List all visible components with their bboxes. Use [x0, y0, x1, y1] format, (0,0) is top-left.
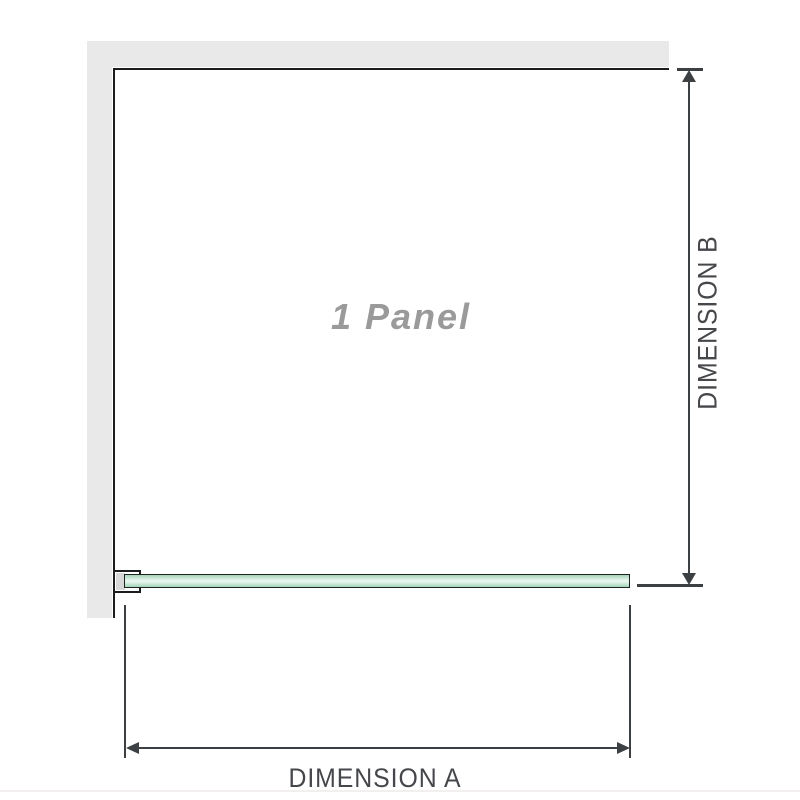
dimension-a-label: DIMENSION A — [189, 764, 561, 792]
dimension-b-arrow-up-icon — [682, 70, 696, 82]
panel-count-label: 1 Panel — [141, 296, 661, 336]
wall-left — [87, 41, 112, 618]
dimension-b-arrow-down-icon — [682, 573, 696, 585]
glass-panel-bar — [124, 574, 630, 588]
dimension-a-arrow-right-icon — [617, 742, 630, 754]
panel-left-edge — [113, 68, 115, 618]
shower-panel-dimension-diagram: 1 Panel DIMENSION B DIMENSION A — [0, 0, 800, 800]
footer-divider — [0, 790, 800, 792]
dimension-b-line — [688, 78, 690, 576]
wall-top — [87, 41, 669, 67]
dimension-a-arrow-left-icon — [126, 742, 139, 754]
dimension-a-left-extension — [124, 605, 126, 758]
dimension-b-label: DIMENSION B — [695, 253, 722, 409]
panel-top-edge — [113, 68, 669, 70]
dimension-a-right-extension — [629, 605, 631, 758]
dimension-a-line — [136, 747, 620, 749]
